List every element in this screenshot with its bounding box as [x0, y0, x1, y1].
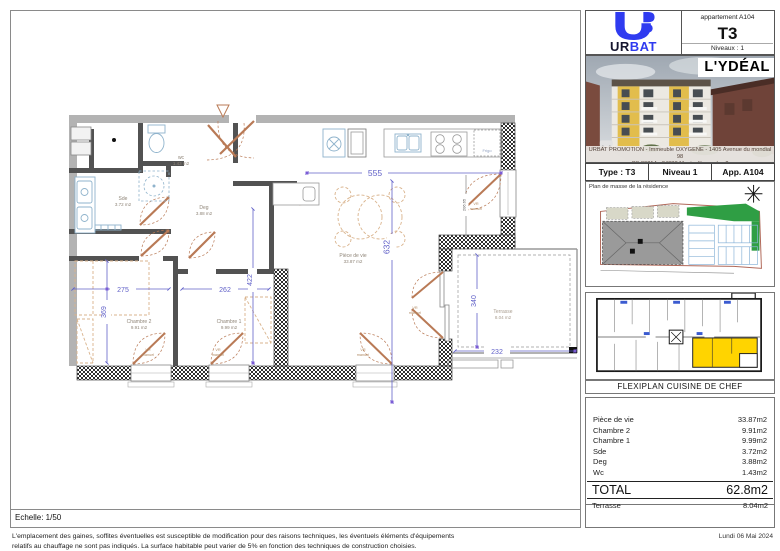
urbat-logo-box: URBAT: [585, 10, 682, 55]
dim-555: 555: [368, 168, 382, 178]
promoter-address: URBAT PROMOTION - Immeuble OXYGENE - 140…: [586, 146, 774, 162]
disclaimer-line-2: relatifs au chauffage ne sont pas indiqu…: [12, 542, 578, 551]
row-value: 33.87m2: [738, 415, 767, 426]
summary-level: Niveau 1: [648, 164, 711, 180]
kitchen-counter: [71, 127, 502, 205]
floor-plan-frame: 555 632 275 369 262 422 340 232 206.65 w…: [10, 10, 581, 528]
row-value: 3.88m2: [742, 457, 767, 468]
room-living-area: 33.87 m2: [344, 259, 363, 264]
table-row: Wc1.43m2: [593, 468, 767, 479]
vr-label: VR: [412, 306, 418, 310]
room-ch1-area: 9.99 m2: [221, 325, 238, 330]
table-row: Pièce de vie33.87m2: [593, 415, 767, 426]
summary-app: App. A104: [711, 164, 774, 180]
room-terrace-area: 8.04 m2: [495, 315, 512, 320]
row-label: Deg: [593, 457, 607, 468]
brand-suffix: BAT: [630, 39, 657, 54]
total-value: 62.8m2: [726, 483, 768, 497]
dim-369: 369: [101, 306, 108, 318]
vr-label: manuel: [212, 353, 225, 357]
row-value: 9.91m2: [742, 426, 767, 437]
apartment-type: T3: [681, 24, 774, 43]
table-row: Chambre 19.99m2: [593, 436, 767, 447]
total-row: TOTAL 62.8m2: [587, 481, 773, 499]
total-label: TOTAL: [592, 483, 631, 497]
room-ch2-area: 9.91 m2: [131, 325, 148, 330]
highlighted-apartment: [693, 338, 758, 367]
project-title: L'YDÉAL: [698, 58, 774, 77]
brand-prefix: UR: [610, 39, 630, 54]
row-label: Wc: [593, 468, 604, 479]
vr-label: VR: [215, 348, 221, 352]
urbat-logo-icon: [611, 12, 657, 40]
summary-table: Type : T3 Niveau 1 App. A104: [585, 163, 775, 181]
site-plan-box: Plan de masse de la résidence: [585, 181, 775, 287]
dim-232: 232: [491, 349, 503, 356]
table-row: Sde3.72m2: [593, 447, 767, 458]
building-photo: L'YDÉAL URBAT PROMOTION - Immeuble OXYGE…: [585, 55, 775, 163]
row-value: 3.72m2: [742, 447, 767, 458]
vr-label: VR: [473, 202, 479, 206]
row-label: Chambre 1: [593, 436, 630, 447]
summary-type: Type : T3: [586, 164, 648, 180]
north-star-icon: [745, 185, 763, 203]
areas-table: Pièce de vie33.87m2 Chambre 29.91m2 Cham…: [585, 397, 775, 505]
table-row: Deg3.88m2: [593, 457, 767, 468]
shutter-labels: VR manuel VR manuel VR manuel VR manuel …: [142, 202, 483, 357]
brand-name: URBAT: [610, 41, 657, 53]
disclaimer-text: L'emplacement des gaines, soffites évent…: [12, 532, 578, 551]
flexiplan-caption: FLEXIPLAN CUISINE DE CHEF: [585, 380, 775, 394]
apartment-label: appartement A104: [681, 11, 774, 24]
dim-262: 262: [219, 287, 231, 294]
dim-275: 275: [117, 287, 129, 294]
row-value: 1.43m2: [742, 468, 767, 479]
print-date: Lundi 06 Mai 2024: [585, 533, 775, 540]
empty-title-block-cell: [585, 505, 775, 528]
apartment-levels: Niveaux : 1: [682, 43, 773, 54]
row-value: 9.99m2: [742, 436, 767, 447]
dim-422: 422: [247, 274, 254, 286]
vr-label: VR: [145, 348, 151, 352]
fridge-label: Frigo: [482, 148, 492, 153]
vr-label: VR: [360, 348, 366, 352]
floor-key-drawing: [586, 293, 774, 379]
table-row: Chambre 29.91m2: [593, 426, 767, 437]
site-plan-drawing: [586, 182, 774, 286]
dim-632: 632: [382, 240, 392, 254]
vr-label: manuel: [142, 353, 155, 357]
areas-rows: Pièce de vie33.87m2 Chambre 29.91m2 Cham…: [586, 398, 774, 478]
plan-sheet: 555 632 275 369 262 422 340 232 206.65 w…: [0, 0, 780, 551]
vr-label: manuel: [357, 353, 370, 357]
row-label: Chambre 2: [593, 426, 630, 437]
row-label: Sde: [593, 447, 606, 458]
vr-label: manuel: [409, 311, 422, 315]
dim-window: 206.65: [462, 198, 467, 211]
room-deg-area: 3.88 m2: [196, 211, 213, 216]
address-line-1: URBAT PROMOTION - Immeuble OXYGENE - 140…: [586, 147, 774, 161]
room-wc-area: 1.43 m2: [173, 161, 190, 166]
bathroom-kitchen-fixtures: [75, 125, 421, 233]
apartment-info-box: appartement A104 T3 Niveaux : 1: [681, 10, 775, 55]
windows: [128, 170, 516, 387]
room-sde-area: 3.72 m2: [115, 202, 132, 207]
site-plan-caption: Plan de masse de la résidence: [589, 184, 668, 190]
floor-plan-drawing: 555 632 275 369 262 422 340 232 206.65 w…: [11, 11, 580, 510]
disclaimer-line-1: L'emplacement des gaines, soffites évent…: [12, 532, 578, 542]
row-label: Pièce de vie: [593, 415, 634, 426]
vr-label: manuel: [470, 207, 483, 211]
dim-340: 340: [471, 295, 478, 307]
scale-label: Echelle: 1/50: [11, 509, 580, 527]
floor-key-box: [585, 292, 775, 380]
